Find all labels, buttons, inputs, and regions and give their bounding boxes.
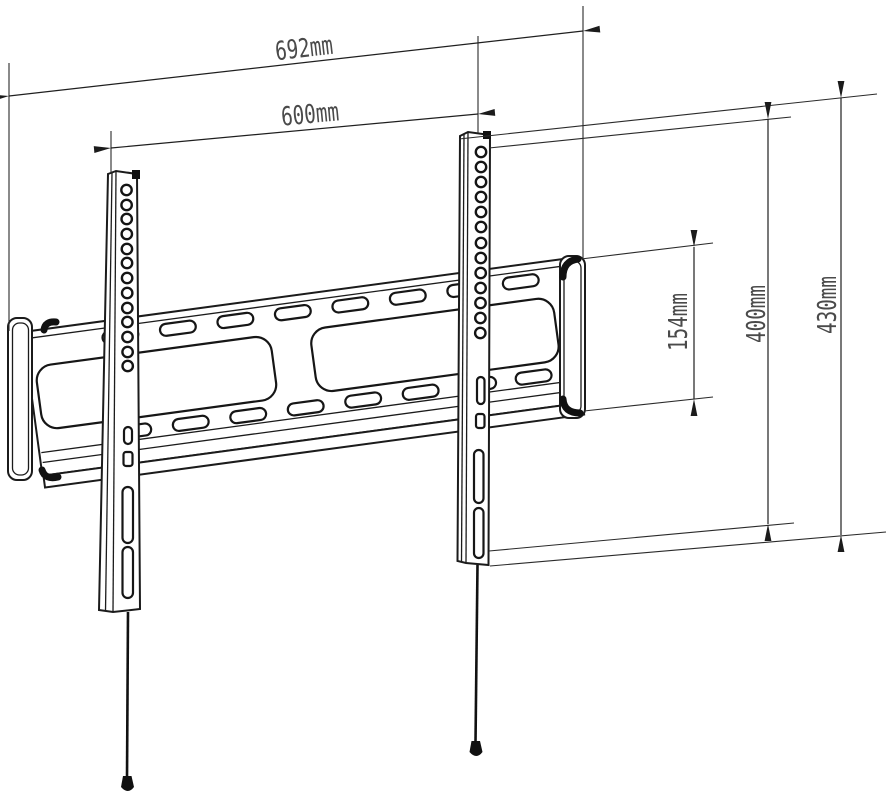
wall-plate-right-cap bbox=[560, 256, 585, 418]
dim-rail-height-label: 430mm bbox=[813, 276, 843, 334]
pull-cord-left bbox=[121, 612, 134, 791]
ext-line bbox=[459, 94, 877, 139]
dim-rail-height: 430mm bbox=[813, 98, 843, 535]
ext-line bbox=[489, 523, 794, 551]
right-vesa-rail bbox=[458, 131, 492, 756]
dim-overall-width: 692mm bbox=[9, 31, 583, 96]
wall-plate bbox=[8, 256, 585, 488]
dim-hole-span-label: 400mm bbox=[742, 285, 772, 343]
pull-cord-knob-right bbox=[470, 741, 483, 756]
pull-cord-right bbox=[470, 565, 483, 756]
ext-line bbox=[490, 532, 886, 566]
dim-rail-spacing: 600mm bbox=[111, 97, 478, 148]
dim-rail-spacing-label: 600mm bbox=[280, 97, 341, 132]
rail-top-tab bbox=[483, 131, 491, 139]
dim-hole-span-vertical: 400mm bbox=[742, 119, 772, 524]
dim-plate-height-label: 154mm bbox=[664, 293, 694, 351]
ext-line bbox=[584, 397, 713, 411]
ext-line bbox=[489, 117, 791, 148]
rail-top-tab bbox=[132, 170, 140, 179]
rail-lower-slots-left bbox=[123, 427, 134, 598]
dim-overall-width-label: 692mm bbox=[274, 31, 335, 67]
dim-plate-height: 154mm bbox=[664, 247, 694, 399]
left-vesa-rail bbox=[99, 170, 140, 791]
mount-dimension-drawing: 692mm 600mm 154mm 400mm 430mm bbox=[0, 0, 888, 800]
pull-cord-knob-left bbox=[121, 776, 134, 791]
ext-line bbox=[581, 243, 713, 259]
